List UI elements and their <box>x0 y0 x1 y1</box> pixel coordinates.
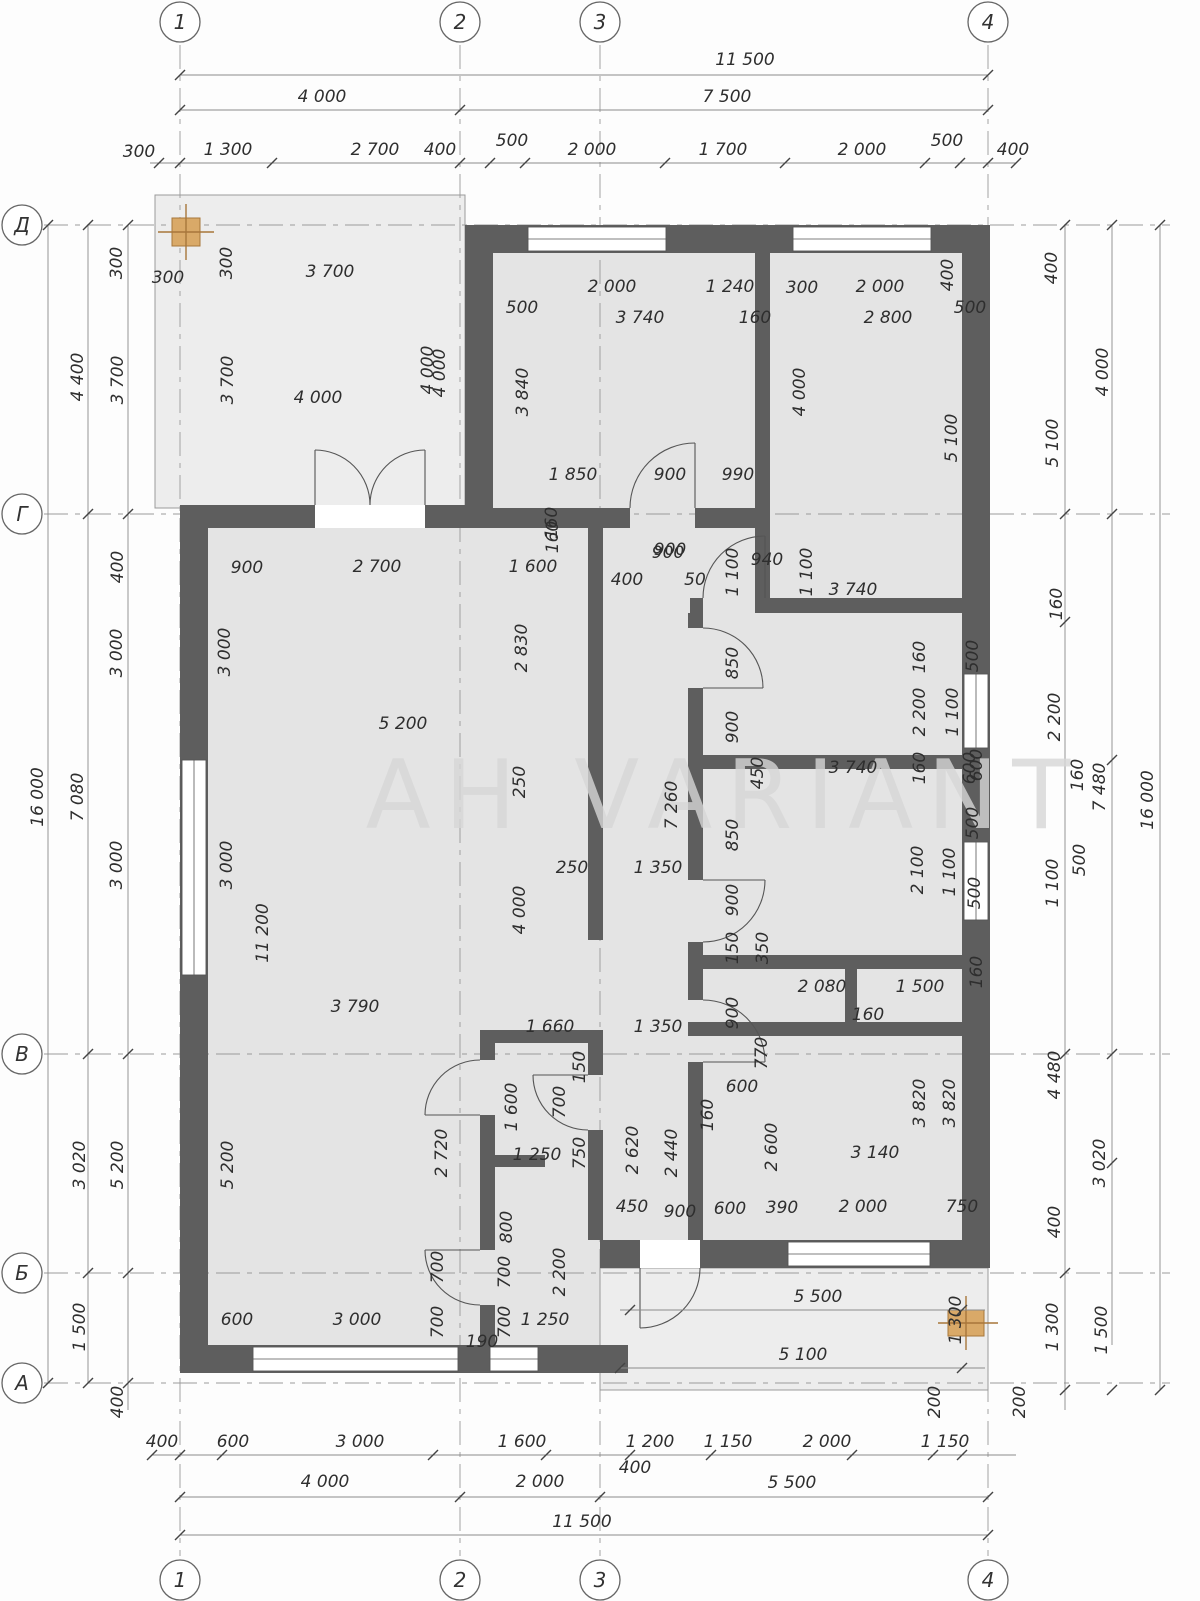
dim-label: 5 200 <box>379 714 428 734</box>
dim-label: 1 350 <box>634 1017 683 1037</box>
dim-label: 1 600 <box>498 1432 547 1452</box>
dim-label: 160 <box>910 641 930 673</box>
axis-bubble-label: 4 <box>982 1568 995 1592</box>
dim-label: 2 800 <box>864 308 913 328</box>
dim-label: 600 <box>960 752 980 784</box>
dim-label: 3 000 <box>107 841 127 890</box>
dim-label: 2 600 <box>762 1123 782 1172</box>
dim-label: 250 <box>556 858 588 878</box>
axis-bubble-label: В <box>15 1042 29 1066</box>
dim-label: 150 <box>723 932 743 964</box>
dim-tick <box>1107 1385 1117 1395</box>
dim-label: 900 <box>664 1202 696 1222</box>
dim-label: 400 <box>108 1386 128 1418</box>
dim-label: 5 100 <box>779 1345 828 1365</box>
dim-label: 4 000 <box>510 886 530 935</box>
dim-label: 4 000 <box>294 388 343 408</box>
dim-label: 250 <box>510 766 530 798</box>
dim-label: 850 <box>723 819 743 851</box>
dim-label: 4 480 <box>1045 1051 1065 1100</box>
dim-label: 3 740 <box>829 758 878 778</box>
dim-label: 1 100 <box>797 548 817 597</box>
dim-label: 900 <box>723 884 743 916</box>
dim-label: 700 <box>550 1086 570 1118</box>
dim-label: 190 <box>466 1332 498 1352</box>
dim-label: 600 <box>217 1432 249 1452</box>
dim-label: 700 <box>428 1251 448 1283</box>
dim-label: 7 500 <box>703 87 752 107</box>
dim-label: 500 <box>1070 844 1090 876</box>
dim-label: 2 100 <box>908 846 928 895</box>
axis-bubble-label: 3 <box>594 10 607 34</box>
dim-label: 5 100 <box>942 414 962 463</box>
dim-label: 450 <box>748 757 768 789</box>
dim-label: 160 <box>543 521 563 553</box>
dim-label: 900 <box>231 558 263 578</box>
floor-plan-drawing: АН VARIANT 11 5004 0007 5003001 3002 700… <box>0 0 1200 1601</box>
dim-label: 3 700 <box>218 356 238 405</box>
dim-label: 3 000 <box>215 628 235 677</box>
dim-label: 1 300 <box>204 140 253 160</box>
axis-bubble-label: 2 <box>454 1568 467 1592</box>
dim-label: 300 <box>786 278 818 298</box>
dim-label: 1 300 <box>946 1296 966 1345</box>
dim-label: 4 000 <box>1093 348 1113 397</box>
dim-label: 4 400 <box>68 353 88 402</box>
dim-label: 900 <box>654 465 686 485</box>
dim-label: 3 000 <box>217 841 237 890</box>
dim-label: 5 500 <box>768 1473 817 1493</box>
dim-label: 1 250 <box>513 1145 562 1165</box>
dim-label: 2 700 <box>351 140 400 160</box>
dim-label: 1 300 <box>1043 1303 1063 1352</box>
dim-label: 1 150 <box>704 1432 753 1452</box>
axis-bubble-label: 1 <box>174 1568 187 1592</box>
dim-label: 2 620 <box>623 1126 643 1175</box>
dim-label: 5 200 <box>218 1141 238 1190</box>
dim-label: 2 700 <box>353 557 402 577</box>
dim-label: 1 100 <box>1043 859 1063 908</box>
dim-label: 1 700 <box>699 140 748 160</box>
dim-label: 1 500 <box>896 977 945 997</box>
dim-label: 5 500 <box>794 1287 843 1307</box>
dim-label: 800 <box>497 1211 517 1243</box>
entrance-opening <box>640 1240 700 1268</box>
dim-label: 4 000 <box>790 368 810 417</box>
dim-label: 3 740 <box>616 308 665 328</box>
dim-label: 2 080 <box>798 977 847 997</box>
dim-label: 2 200 <box>910 688 930 737</box>
dim-label: 11 200 <box>253 903 273 962</box>
dim-label: 3 000 <box>336 1432 385 1452</box>
dim-label: 1 350 <box>634 858 683 878</box>
dim-label: 1 100 <box>943 688 963 737</box>
dim-label: 300 <box>152 268 184 288</box>
dim-label: 3 820 <box>910 1079 930 1128</box>
dim-label: 2 720 <box>432 1129 452 1178</box>
dim-label: 1 100 <box>940 848 960 897</box>
dim-label: 1 200 <box>626 1432 675 1452</box>
dim-label: 750 <box>946 1197 978 1217</box>
dim-label: 2 000 <box>838 140 887 160</box>
dim-label: 200 <box>1010 1386 1030 1418</box>
dim-label: 3 000 <box>333 1310 382 1330</box>
dim-label: 900 <box>723 997 743 1029</box>
axis-bubble-label: 3 <box>594 1568 607 1592</box>
dim-label: 2 000 <box>839 1197 888 1217</box>
dim-label: 7 260 <box>662 781 682 830</box>
dim-label: 390 <box>766 1198 798 1218</box>
dim-label: 1 150 <box>921 1432 970 1452</box>
dim-label: 2 000 <box>568 140 617 160</box>
dim-label: 3 140 <box>851 1143 900 1163</box>
dim-label: 450 <box>616 1197 648 1217</box>
dim-label: 1 500 <box>70 1303 90 1352</box>
axis-bubble-label: Б <box>15 1261 29 1285</box>
dim-label: 160 <box>698 1099 718 1131</box>
dim-label: 500 <box>506 298 538 318</box>
dim-label: 160 <box>1047 588 1067 620</box>
dim-label: 900 <box>723 711 743 743</box>
dim-label: 500 <box>963 807 983 839</box>
dim-label: 2 000 <box>803 1432 852 1452</box>
dim-label: 500 <box>931 131 963 151</box>
dim-label: 2 440 <box>662 1129 682 1178</box>
axis-bubble-label: Г <box>16 502 29 526</box>
dim-label: 2 200 <box>1045 693 1065 742</box>
dim-label: 11 500 <box>552 1512 611 1532</box>
dim-label: 850 <box>723 647 743 679</box>
dim-label: 3 740 <box>829 580 878 600</box>
dim-label: 4 000 <box>301 1472 350 1492</box>
dim-label: 3 790 <box>331 997 380 1017</box>
axis-bubble-label: 4 <box>982 10 995 34</box>
dim-label: 770 <box>752 1037 772 1069</box>
dim-label: 7 480 <box>1090 763 1110 812</box>
dim-label: 700 <box>428 1306 448 1338</box>
dim-label: 600 <box>221 1310 253 1330</box>
dim-label: 1 240 <box>706 277 755 297</box>
dim-label: 2 000 <box>856 277 905 297</box>
dim-label: 150 <box>570 1051 590 1083</box>
dim-label: 3 700 <box>108 356 128 405</box>
dim-label: 5 100 <box>1043 419 1063 468</box>
dim-label: 1 500 <box>1092 1306 1112 1355</box>
dim-label: 1 660 <box>526 1017 575 1037</box>
dim-label: 5 200 <box>108 1141 128 1190</box>
dim-label: 3 840 <box>513 368 533 417</box>
dim-label: 400 <box>997 140 1029 160</box>
dim-label: 350 <box>753 932 773 964</box>
dim-label: 400 <box>424 140 456 160</box>
dim-label: 1 600 <box>502 1083 522 1132</box>
dim-label: 2 000 <box>516 1472 565 1492</box>
axis-bubble-label: Д <box>13 213 30 237</box>
dim-label: 11 500 <box>715 50 774 70</box>
dim-label: 160 <box>967 956 987 988</box>
dim-label: 400 <box>1042 252 1062 284</box>
dim-label: 940 <box>751 550 783 570</box>
axis-bubble-label: 1 <box>174 10 187 34</box>
dim-label: 400 <box>108 551 128 583</box>
dim-label: 160 <box>1068 759 1088 791</box>
dim-label: 900 <box>652 543 684 563</box>
dim-label: 300 <box>217 247 237 279</box>
dim-label: 300 <box>107 247 127 279</box>
dim-label: 990 <box>722 465 754 485</box>
dim-label: 2 830 <box>512 624 532 673</box>
dim-label: 500 <box>496 131 528 151</box>
dim-label: 7 080 <box>68 773 88 822</box>
dim-label: 3 020 <box>1090 1139 1110 1188</box>
dim-label: 1 250 <box>521 1310 570 1330</box>
dim-label: 3 000 <box>107 629 127 678</box>
dim-label: 160 <box>910 752 930 784</box>
dim-label: 500 <box>954 298 986 318</box>
dim-label: 3 700 <box>306 262 355 282</box>
dim-label: 3 020 <box>70 1141 90 1190</box>
dim-label: 1 600 <box>509 557 558 577</box>
axis-bubble-label: А <box>13 1371 29 1395</box>
axis-bubble-label: 2 <box>454 10 467 34</box>
dim-label: 600 <box>726 1077 758 1097</box>
dim-label: 3 820 <box>940 1079 960 1128</box>
dim-label: 400 <box>619 1458 651 1478</box>
dim-label: 50 <box>684 570 706 590</box>
dim-label: 400 <box>1045 1206 1065 1238</box>
dim-label: 500 <box>965 877 985 909</box>
floor-plan-page: АН VARIANT 11 5004 0007 5003001 3002 700… <box>0 0 1200 1601</box>
dim-label: 700 <box>495 1256 515 1288</box>
dim-label: 500 <box>963 640 983 672</box>
dim-label: 4 000 <box>430 349 450 398</box>
dim-label: 160 <box>852 1005 884 1025</box>
dim-label: 750 <box>570 1137 590 1169</box>
dim-label: 1 100 <box>723 548 743 597</box>
dim-label: 200 <box>925 1386 945 1418</box>
dim-label: 2 200 <box>550 1248 570 1297</box>
dim-label: 400 <box>938 259 958 291</box>
dim-label: 16 000 <box>1138 770 1158 829</box>
dim-label: 300 <box>123 142 155 162</box>
dim-label: 400 <box>611 570 643 590</box>
dim-label: 160 <box>739 308 771 328</box>
dim-label: 600 <box>714 1199 746 1219</box>
dim-label: 400 <box>146 1432 178 1452</box>
garage-door-opening <box>315 505 425 528</box>
dim-label: 4 000 <box>298 87 347 107</box>
dim-label: 2 000 <box>588 277 637 297</box>
dim-label: 16 000 <box>28 767 48 826</box>
dim-label: 1 850 <box>549 465 598 485</box>
